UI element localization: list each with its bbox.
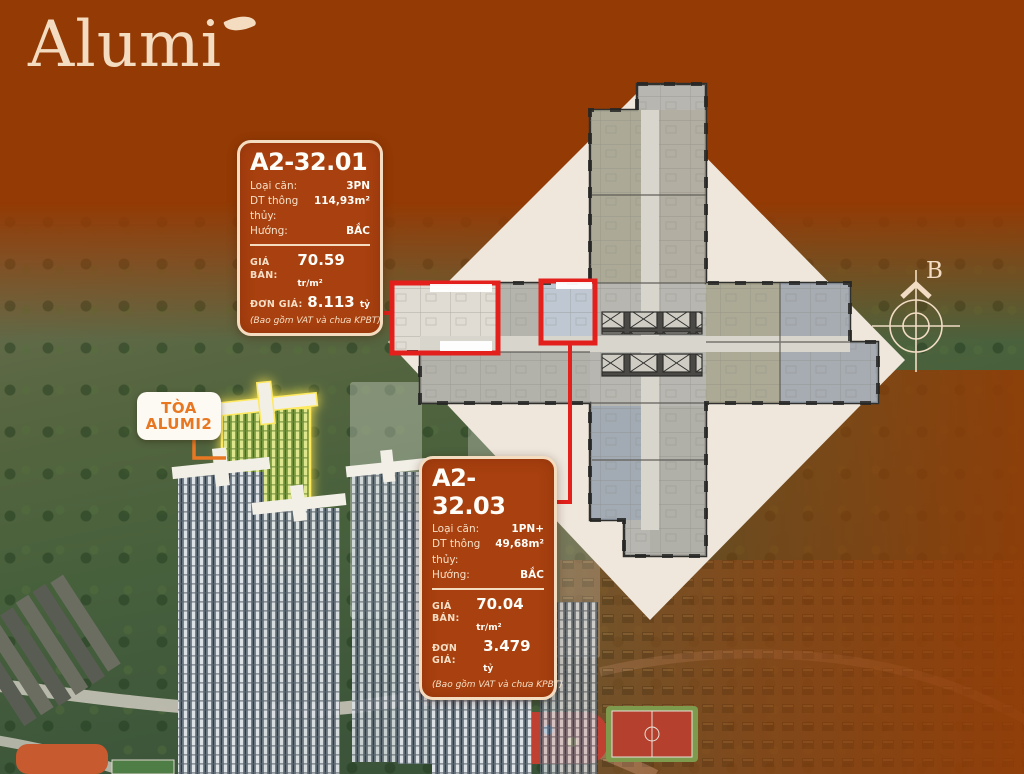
unit-card-title: A2-32.01 — [250, 149, 370, 177]
tower-label-line1: TÒA — [161, 400, 197, 417]
unit-row-price-total: ĐƠN GIÁ: 3.479 tỷ — [432, 636, 544, 678]
card-note: (Bao gồm VAT và chưa KPBT) — [250, 316, 370, 326]
unit-row-price-m2: GIÁ BÁN: 70.04 tr/m² — [432, 594, 544, 636]
unit-row-price-total: ĐƠN GIÁ: 8.113 tỷ — [250, 292, 370, 313]
unit-card-A2-32-01: A2-32.01 Loại căn: 3PN DT thông thủy: 11… — [237, 140, 383, 336]
unit-row-type: Loại căn: 3PN — [250, 179, 370, 194]
unit-row-direction: Hướng: BẮC — [250, 224, 370, 239]
alumi-logo: Alumi — [28, 10, 222, 80]
card-divider — [432, 588, 544, 590]
unit-card-title: A2-32.03 — [432, 465, 544, 520]
tower-label-bubble: TÒA ALUMI2 — [137, 392, 221, 440]
alumi-logo-text: Alumi — [28, 8, 222, 82]
unit-card-A2-32-03: A2-32.03 Loại căn: 1PN+ DT thông thủy: 4… — [419, 456, 557, 700]
unit-row-area: DT thông thủy: 114,93m² — [250, 194, 370, 224]
unit-row-type: Loại căn: 1PN+ — [432, 522, 544, 537]
tower-2 — [250, 480, 347, 774]
elevator-bank-top — [602, 312, 702, 334]
unit-row-area: DT thông thủy: 49,68m² — [432, 537, 544, 567]
tower-label-line2: ALUMI2 — [146, 416, 213, 433]
unit-row-direction: Hướng: BẮC — [432, 568, 544, 583]
unit-row-price-m2: GIÁ BÁN: 70.59 tr/m² — [250, 250, 370, 292]
compass-north-letter: B — [926, 258, 943, 284]
card-divider — [250, 244, 370, 246]
elevator-bank-bottom — [602, 354, 702, 376]
card-note: (Bao gồm VAT và chưa KPBT) — [432, 680, 544, 690]
tower-1 — [170, 443, 271, 774]
